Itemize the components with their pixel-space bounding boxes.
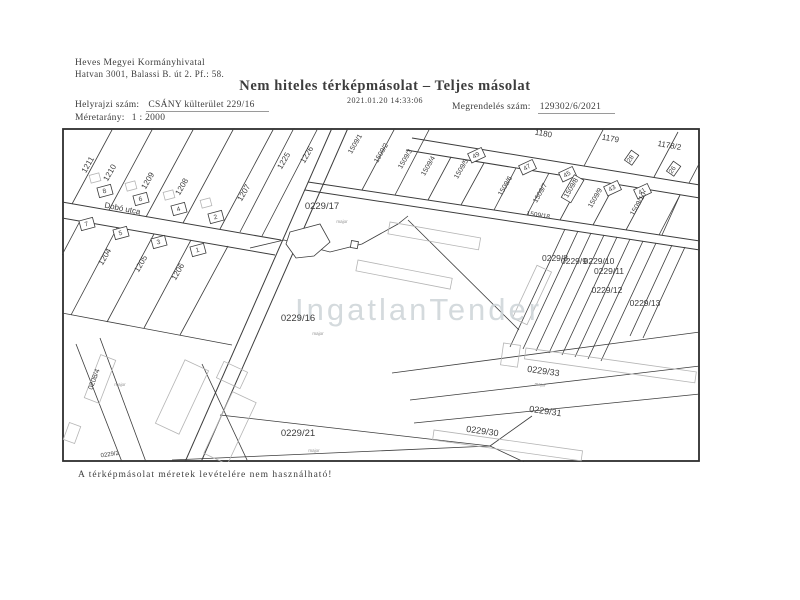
map-label: 0229/17 bbox=[305, 201, 339, 212]
parcel-number-label: Helyrajzi szám: bbox=[75, 100, 139, 110]
parcel-number-row: Helyrajzi szám:CSÁNY külterület 229/16 bbox=[75, 100, 269, 110]
cadastral-map: IngatlanTender 1211121012091208120712251… bbox=[62, 128, 700, 462]
map-label: 0229/21 bbox=[281, 428, 315, 439]
watermark: IngatlanTender bbox=[295, 292, 542, 327]
document-title: Nem hiteles térképmásolat – Teljes másol… bbox=[180, 78, 590, 95]
map-label: major bbox=[312, 331, 324, 336]
scale-row: Méretarány:1 : 2000 bbox=[75, 113, 165, 123]
scanned-cadastral-document: Heves Megyei Kormányhivatal Hatvan 3001,… bbox=[0, 0, 800, 600]
office-name: Heves Megyei Kormányhivatal bbox=[75, 58, 205, 68]
map-label: 0229/11 bbox=[594, 266, 624, 276]
map-label: major bbox=[336, 219, 348, 224]
footer-disclaimer: A térképmásolat méretek levételére nem h… bbox=[78, 470, 332, 480]
map-label: major bbox=[308, 448, 320, 453]
order-number-value: 129302/6/2021 bbox=[538, 102, 615, 114]
map-label: 0229/16 bbox=[281, 313, 315, 324]
map-label: major bbox=[114, 382, 126, 387]
map-label: 0229/13 bbox=[630, 298, 661, 308]
scale-label: Méretarány: bbox=[75, 113, 125, 123]
map-label: 0229/10 bbox=[584, 256, 615, 266]
order-number-row: Megrendelés szám:129302/6/2021 bbox=[452, 102, 615, 112]
map-label: 0229/12 bbox=[592, 285, 623, 295]
parcel-number-value: CSÁNY külterület 229/16 bbox=[146, 100, 268, 112]
scale-value: 1 : 2000 bbox=[132, 113, 166, 123]
order-number-label: Megrendelés szám: bbox=[452, 102, 531, 112]
